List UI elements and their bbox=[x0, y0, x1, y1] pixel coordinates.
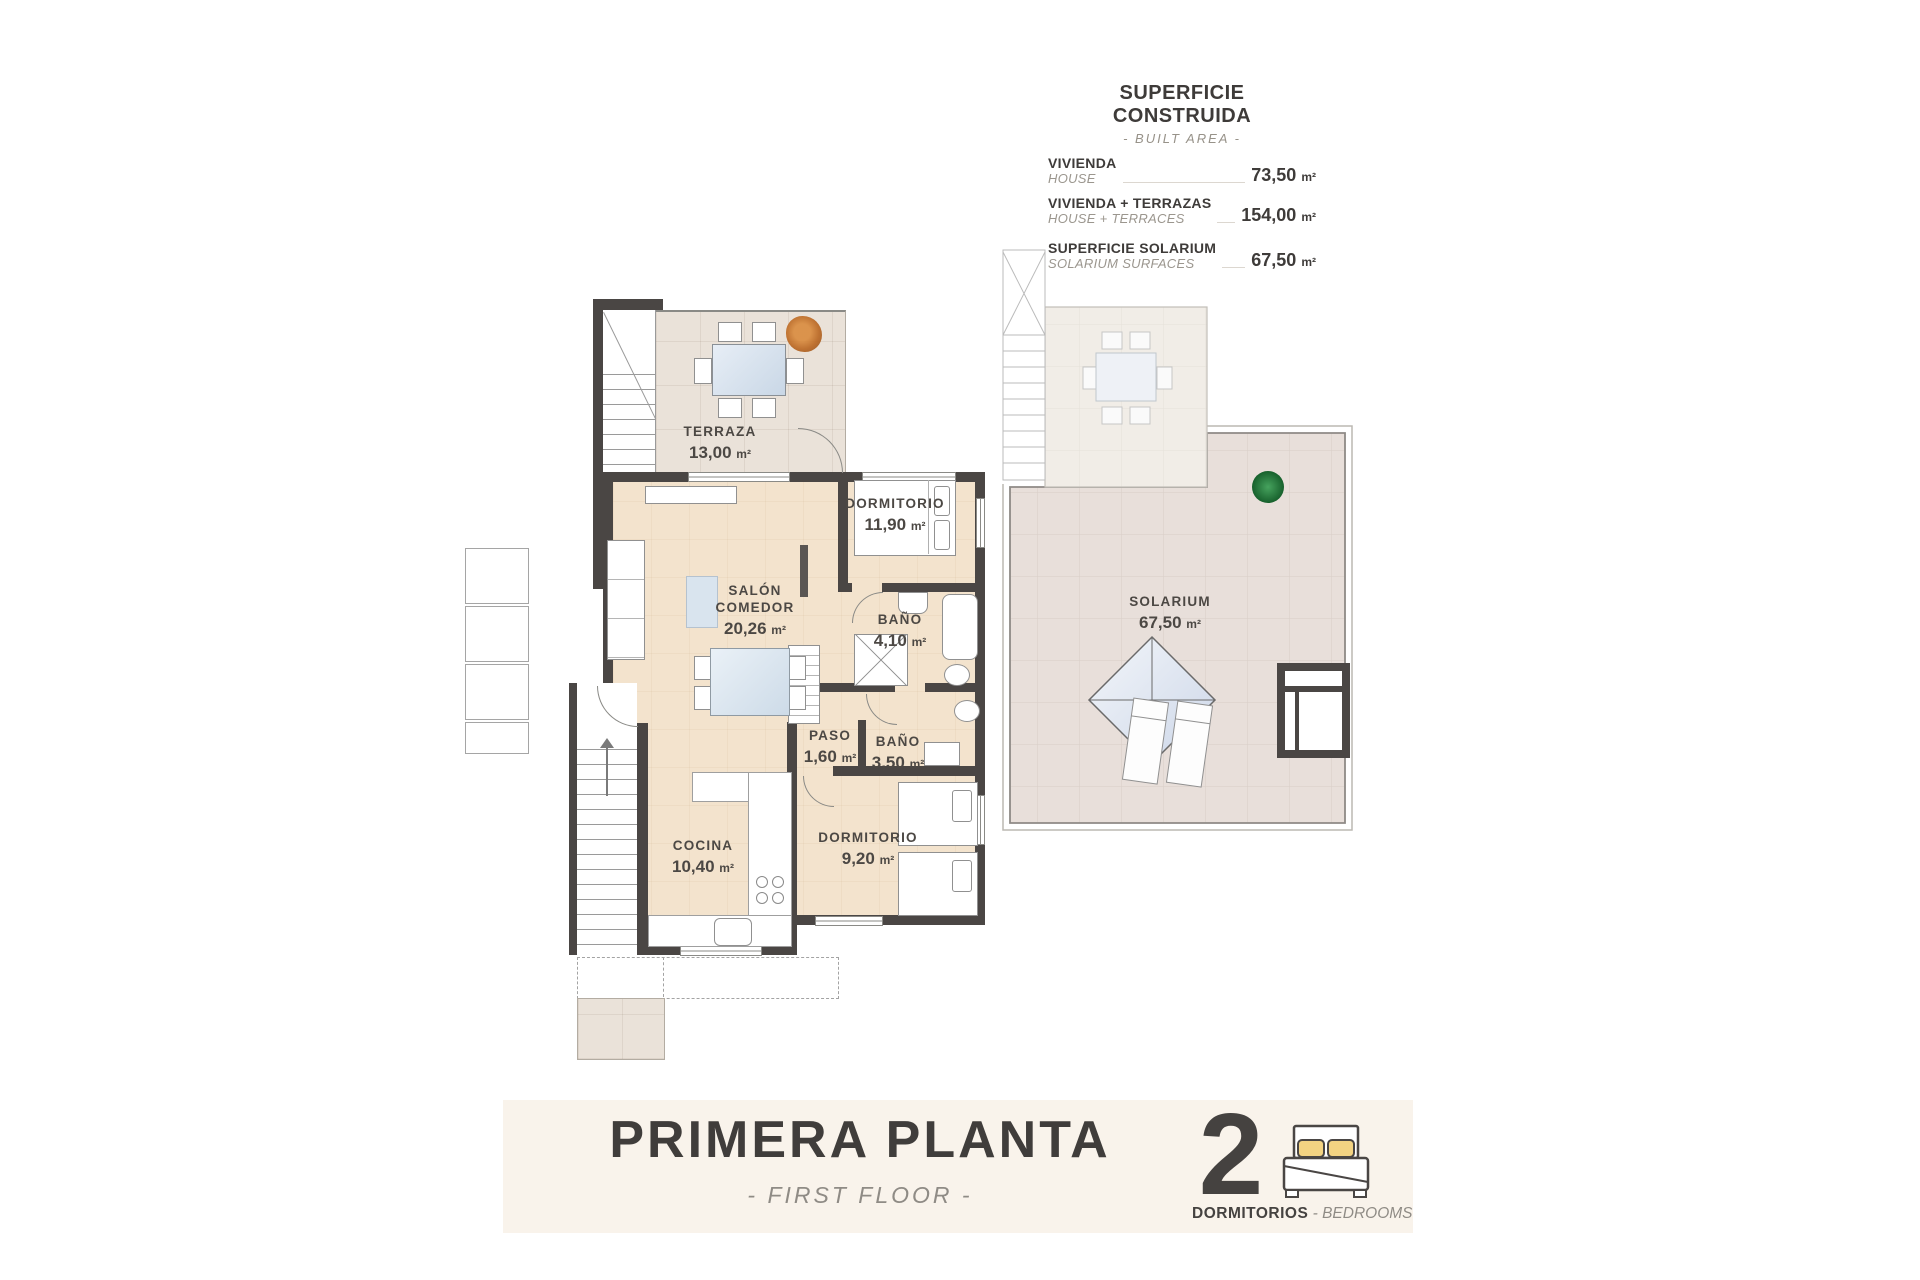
table-title: SUPERFICIE CONSTRUIDA bbox=[1048, 82, 1316, 128]
page-subtitle: - FIRST FLOOR - bbox=[520, 1182, 1200, 1209]
terrace-chair bbox=[752, 322, 776, 342]
row-label: VIVIENDA + TERRAZAS bbox=[1048, 195, 1211, 211]
bathtub bbox=[942, 594, 978, 660]
row-label-en: HOUSE bbox=[1048, 171, 1117, 186]
window bbox=[688, 472, 790, 482]
kitchen-sink bbox=[714, 918, 752, 946]
leader-line bbox=[1217, 221, 1235, 223]
room-label-dormitorio-1: DORMITORIO 11,90 m² bbox=[835, 496, 955, 535]
wall bbox=[593, 299, 603, 589]
sofa bbox=[607, 540, 645, 660]
sink bbox=[898, 592, 928, 614]
stairs-arrow-stem bbox=[606, 746, 608, 796]
room-label-cocina: COCINA 10,40 m² bbox=[653, 838, 753, 877]
bed-icon bbox=[1272, 1124, 1380, 1202]
wall bbox=[593, 299, 663, 310]
row-label: VIVIENDA bbox=[1048, 155, 1117, 171]
room-label-terraza: TERRAZA 13,00 m² bbox=[665, 424, 775, 463]
dining-chair bbox=[788, 656, 806, 680]
room-label-dormitorio-2: DORMITORIO 9,20 m² bbox=[813, 830, 923, 869]
tv-sideboard bbox=[645, 486, 737, 504]
table-row: VIVIENDA HOUSE 73,50 m² bbox=[1048, 155, 1316, 186]
bedrooms-caption: DORMITORIOS - BEDROOMS bbox=[1192, 1205, 1412, 1223]
room-label-solarium: SOLARIUM 67,50 m² bbox=[1100, 594, 1240, 633]
dining-table bbox=[710, 648, 790, 716]
window bbox=[680, 946, 762, 956]
porch-divider bbox=[663, 957, 664, 997]
terrace-chair bbox=[718, 322, 742, 342]
terrace-chair bbox=[786, 358, 804, 384]
window bbox=[815, 916, 883, 926]
planter-box bbox=[465, 548, 529, 604]
terrace-chair bbox=[752, 398, 776, 418]
floor-plan-page: SUPERFICIE CONSTRUIDA - BUILT AREA - VIV… bbox=[0, 0, 1920, 1280]
planter-box bbox=[465, 606, 529, 662]
porch-tile bbox=[577, 998, 665, 1060]
porch-outline bbox=[577, 957, 839, 999]
planter-box bbox=[465, 722, 529, 754]
terrace-stairs-treads bbox=[603, 360, 655, 480]
toilet bbox=[944, 664, 970, 686]
room-label-salon-comedor: SALÓN COMEDOR 20,26 m² bbox=[705, 583, 805, 639]
wall bbox=[569, 683, 577, 955]
pillow bbox=[952, 860, 972, 892]
dining-chair bbox=[788, 686, 806, 710]
bedrooms-count: 2 bbox=[1186, 1096, 1276, 1212]
solarium-drawing bbox=[995, 240, 1355, 855]
table-subtitle: - BUILT AREA - bbox=[1048, 131, 1316, 146]
page-title: PRIMERA PLANTA bbox=[520, 1112, 1200, 1169]
table-row: VIVIENDA + TERRAZAS HOUSE + TERRACES 154… bbox=[1048, 195, 1316, 226]
stove-icon bbox=[756, 876, 784, 904]
pillow bbox=[952, 790, 972, 822]
window bbox=[976, 498, 985, 548]
terrace-table bbox=[712, 344, 786, 396]
room-label-bano-2: BAÑO 3,50 m² bbox=[853, 734, 943, 773]
row-label-en: HOUSE + TERRACES bbox=[1048, 211, 1211, 226]
wall bbox=[637, 723, 648, 945]
leader-line bbox=[1123, 181, 1246, 183]
wall bbox=[882, 583, 985, 592]
plant-icon bbox=[786, 316, 822, 352]
toilet bbox=[954, 700, 980, 722]
row-value: 73,50 m² bbox=[1251, 165, 1316, 186]
terrace-chair bbox=[718, 398, 742, 418]
planter-box bbox=[465, 664, 529, 720]
wall bbox=[838, 583, 852, 592]
terrace-chair bbox=[694, 358, 712, 384]
row-value: 154,00 m² bbox=[1241, 205, 1316, 226]
room-label-bano-1: BAÑO 4,10 m² bbox=[855, 612, 945, 651]
